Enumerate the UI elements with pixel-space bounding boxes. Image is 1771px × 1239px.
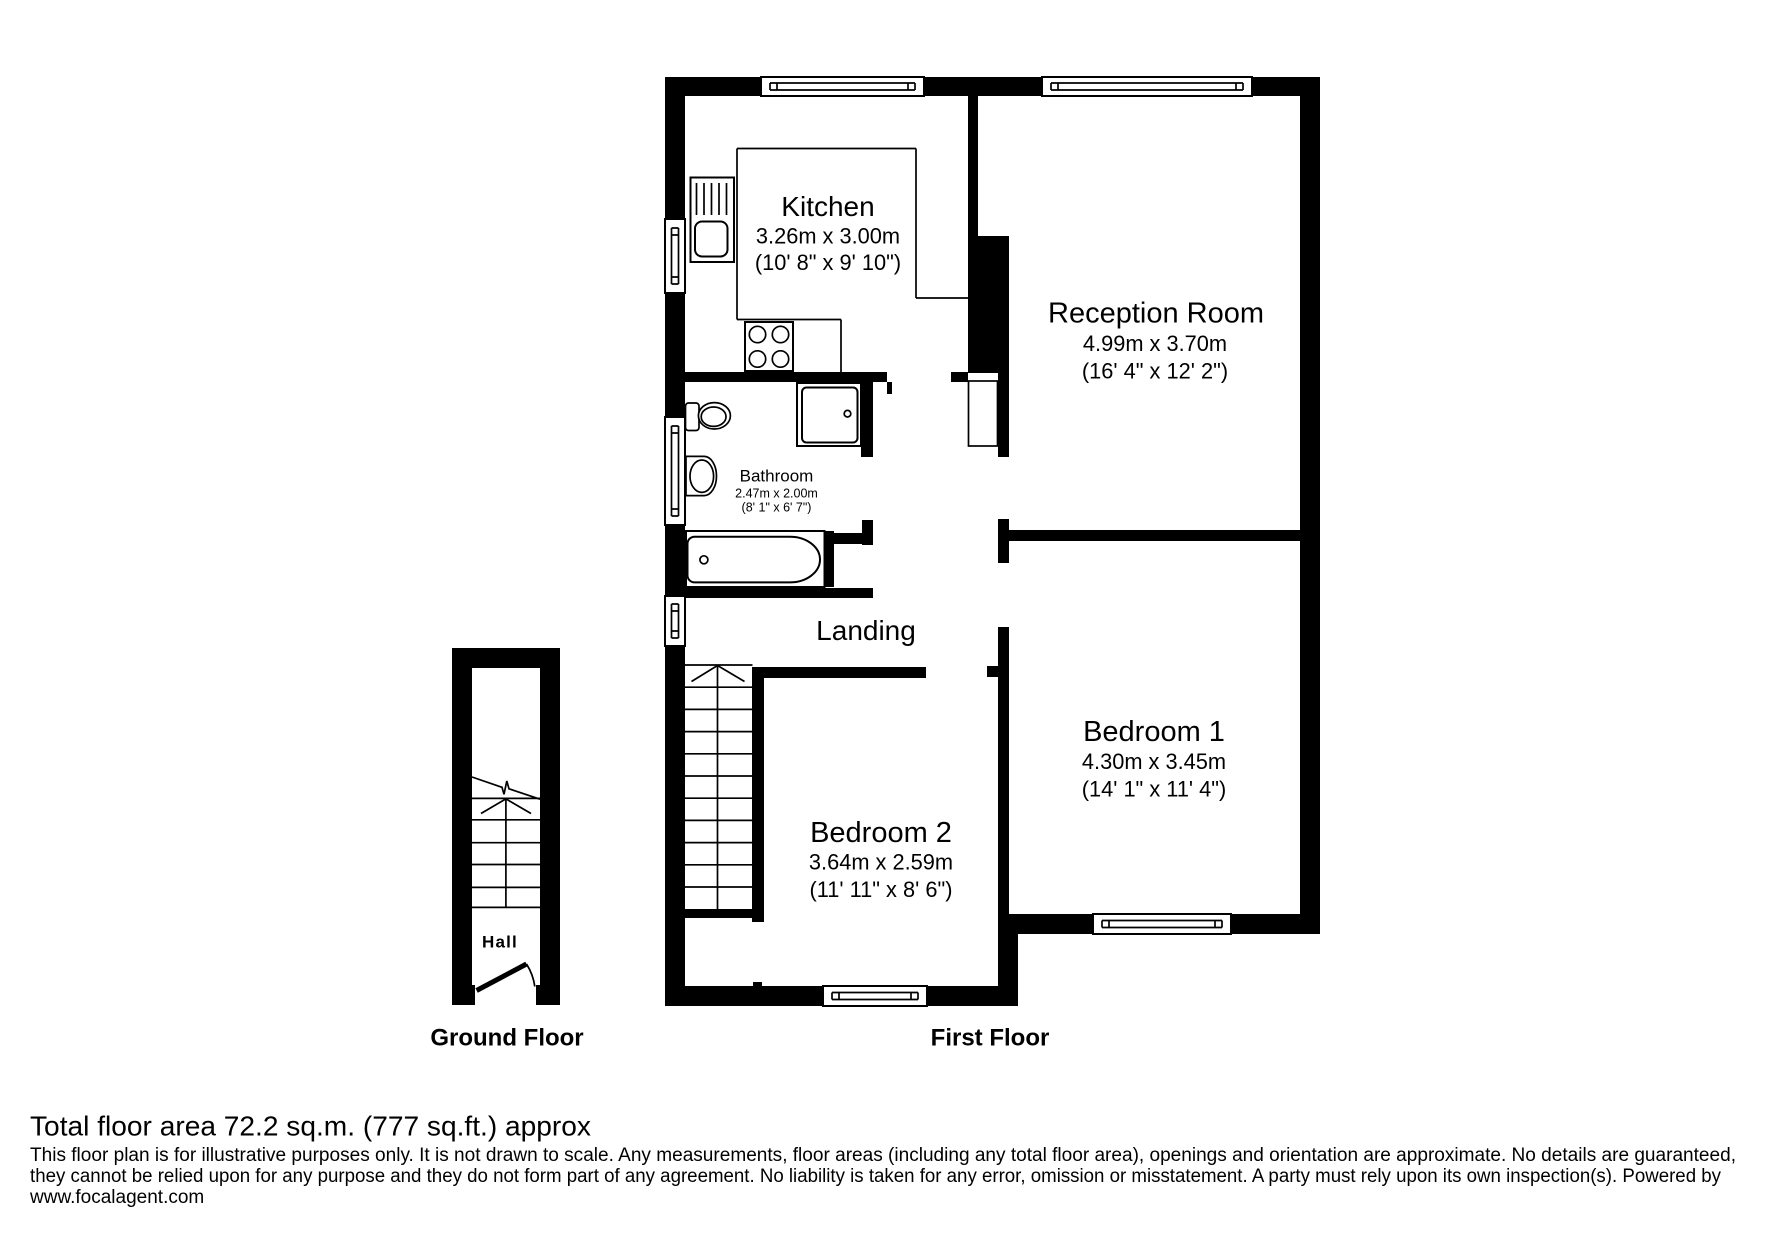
svg-text:(8' 1" x 6' 7"): (8' 1" x 6' 7")	[742, 501, 812, 515]
svg-text:Total floor area 72.2 sq.m. (7: Total floor area 72.2 sq.m. (777 sq.ft.)…	[30, 1111, 591, 1142]
svg-text:Kitchen: Kitchen	[781, 191, 874, 222]
svg-text:2.47m x 2.00m: 2.47m x 2.00m	[735, 487, 818, 501]
svg-text:4.30m x 3.45m: 4.30m x 3.45m	[1082, 749, 1226, 774]
svg-text:Landing: Landing	[816, 615, 916, 646]
svg-text:(16' 4" x 12' 2"): (16' 4" x 12' 2")	[1082, 359, 1228, 384]
svg-text:3.26m x 3.00m: 3.26m x 3.00m	[756, 224, 900, 249]
svg-text:www.focalagent.com: www.focalagent.com	[29, 1187, 204, 1208]
svg-text:This floor plan is for illustr: This floor plan is for illustrative purp…	[30, 1145, 1736, 1166]
svg-text:(11' 11" x 8' 6"): (11' 11" x 8' 6")	[810, 877, 953, 902]
svg-text:(10' 8" x 9' 10"): (10' 8" x 9' 10")	[755, 250, 901, 275]
svg-text:4.99m x 3.70m: 4.99m x 3.70m	[1083, 331, 1227, 356]
svg-text:Ground Floor: Ground Floor	[430, 1025, 583, 1052]
svg-text:(14' 1" x 11' 4"): (14' 1" x 11' 4")	[1082, 777, 1227, 802]
svg-text:First Floor: First Floor	[931, 1025, 1050, 1052]
svg-text:Hall: Hall	[482, 933, 518, 952]
svg-text:Bedroom 1: Bedroom 1	[1083, 716, 1225, 748]
svg-text:Reception Room: Reception Room	[1048, 298, 1264, 330]
svg-text:they cannot be relied upon for: they cannot be relied upon for any purpo…	[30, 1166, 1721, 1187]
svg-text:3.64m x 2.59m: 3.64m x 2.59m	[809, 850, 953, 875]
svg-text:Bedroom 2: Bedroom 2	[810, 817, 952, 849]
svg-text:Bathroom: Bathroom	[740, 467, 814, 486]
